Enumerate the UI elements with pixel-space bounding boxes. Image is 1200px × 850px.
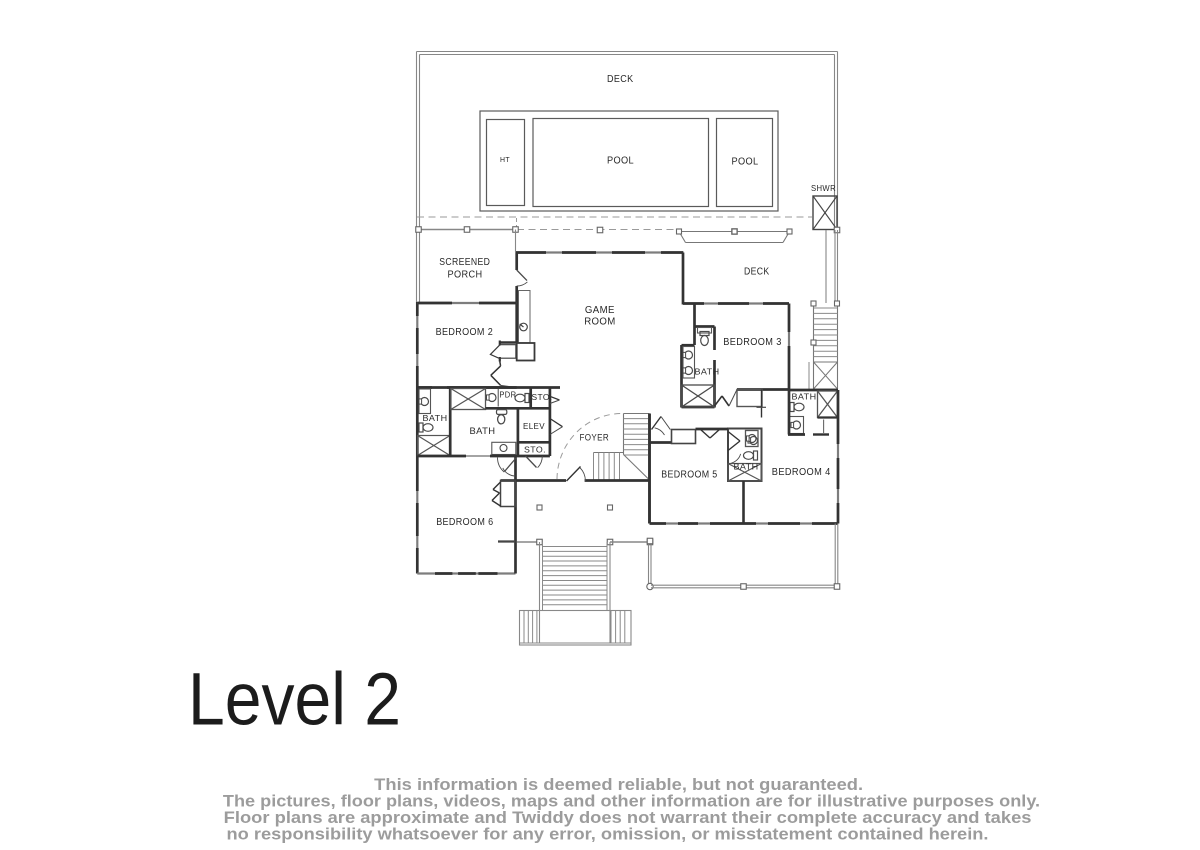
svg-text:DECK: DECK xyxy=(607,74,634,85)
svg-text:SHWR: SHWR xyxy=(811,183,836,193)
svg-text:ELEV: ELEV xyxy=(523,421,545,431)
svg-text:BEDROOM 2: BEDROOM 2 xyxy=(436,327,494,338)
svg-text:Level 2: Level 2 xyxy=(188,658,401,741)
svg-text:Floor plans are approximate an: Floor plans are approximate and Twiddy d… xyxy=(224,809,1032,827)
svg-text:BEDROOM 3: BEDROOM 3 xyxy=(723,337,781,348)
svg-text:PORCH: PORCH xyxy=(448,270,483,281)
svg-text:BATH: BATH xyxy=(423,413,448,423)
svg-text:BATH: BATH xyxy=(792,392,817,402)
svg-text:ROOM: ROOM xyxy=(584,317,616,328)
svg-text:PDR: PDR xyxy=(499,391,516,400)
svg-text:no responsibility whatsoever f: no responsibility whatsoever for any err… xyxy=(227,826,989,844)
svg-text:BEDROOM 4: BEDROOM 4 xyxy=(772,467,831,478)
svg-text:BATH: BATH xyxy=(695,367,720,377)
svg-text:POOL: POOL xyxy=(607,155,634,167)
svg-text:BEDROOM 6: BEDROOM 6 xyxy=(436,517,493,528)
svg-text:DECK: DECK xyxy=(744,267,770,278)
svg-text:SCREENED: SCREENED xyxy=(439,257,490,268)
svg-text:BEDROOM 5: BEDROOM 5 xyxy=(661,470,717,481)
svg-text:GAME: GAME xyxy=(585,305,615,316)
svg-text:FOYER: FOYER xyxy=(580,433,610,444)
svg-text:POOL: POOL xyxy=(732,156,759,168)
svg-text:BATH: BATH xyxy=(470,426,496,436)
svg-text:STO.: STO. xyxy=(524,445,546,455)
svg-text:BATH: BATH xyxy=(734,462,759,472)
svg-text:The pictures, floor plans, vid: The pictures, floor plans, videos, maps … xyxy=(223,793,1040,811)
svg-text:This information is deemed rel: This information is deemed reliable, but… xyxy=(374,776,863,794)
svg-text:HT: HT xyxy=(500,155,510,164)
